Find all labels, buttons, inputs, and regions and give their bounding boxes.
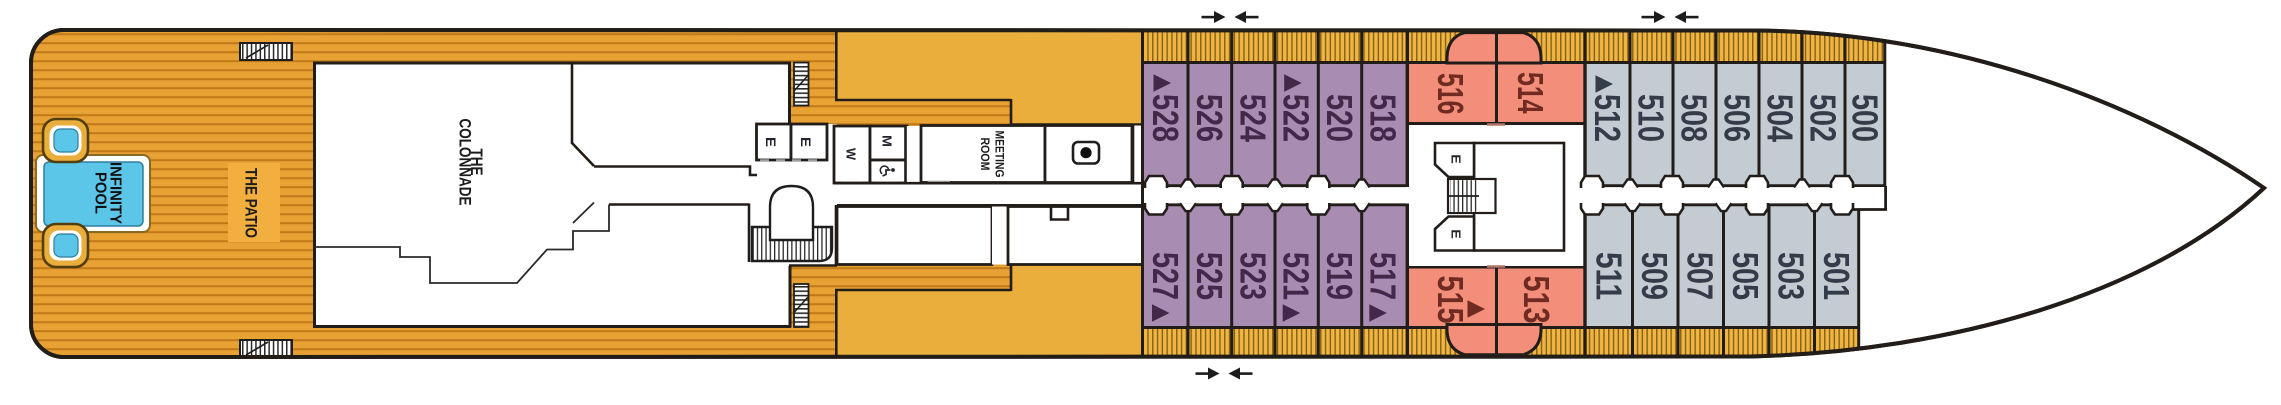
svg-text:516: 516 [1430, 73, 1471, 115]
svg-text:525: 525 [1189, 252, 1230, 300]
svg-text:E: E [763, 137, 779, 147]
svg-text:E: E [798, 137, 814, 147]
svg-text:500: 500 [1845, 94, 1886, 142]
svg-text:E: E [1448, 229, 1462, 239]
svg-text:512: 512 [1587, 94, 1628, 142]
svg-text:506: 506 [1717, 94, 1758, 142]
svg-text:507: 507 [1680, 252, 1721, 300]
svg-text:522: 522 [1276, 94, 1317, 142]
svg-text:M: M [879, 135, 894, 147]
svg-text:E: E [1448, 154, 1462, 164]
svg-text:517: 517 [1362, 252, 1403, 300]
svg-text:515: 515 [1430, 276, 1471, 324]
svg-text:511: 511 [1589, 252, 1630, 300]
svg-text:521: 521 [1276, 252, 1317, 300]
svg-text:508: 508 [1674, 94, 1715, 142]
svg-text:518: 518 [1362, 94, 1403, 142]
svg-text:501: 501 [1816, 252, 1857, 300]
svg-text:ROOM: ROOM [978, 138, 992, 171]
svg-text:528: 528 [1145, 94, 1186, 142]
svg-text:520: 520 [1319, 94, 1360, 142]
svg-text:THE: THE [467, 149, 486, 176]
svg-text:510: 510 [1631, 94, 1672, 142]
svg-text:514: 514 [1510, 72, 1551, 114]
svg-text:505: 505 [1725, 252, 1766, 300]
svg-text:519: 519 [1319, 252, 1360, 300]
svg-text:524: 524 [1232, 94, 1273, 142]
svg-text:MEETING: MEETING [993, 131, 1007, 178]
svg-text:POOL: POOL [92, 172, 109, 214]
svg-text:W: W [843, 148, 858, 161]
svg-text:504: 504 [1760, 94, 1801, 142]
svg-text:INFINITY: INFINITY [107, 162, 124, 224]
svg-text:527: 527 [1145, 252, 1186, 300]
svg-text:THE PATIO: THE PATIO [241, 168, 260, 238]
svg-text:526: 526 [1189, 94, 1230, 142]
svg-text:502: 502 [1803, 94, 1844, 142]
svg-text:513: 513 [1516, 276, 1557, 324]
svg-text:509: 509 [1634, 252, 1675, 300]
svg-text:503: 503 [1771, 252, 1812, 300]
svg-text:523: 523 [1232, 252, 1273, 300]
